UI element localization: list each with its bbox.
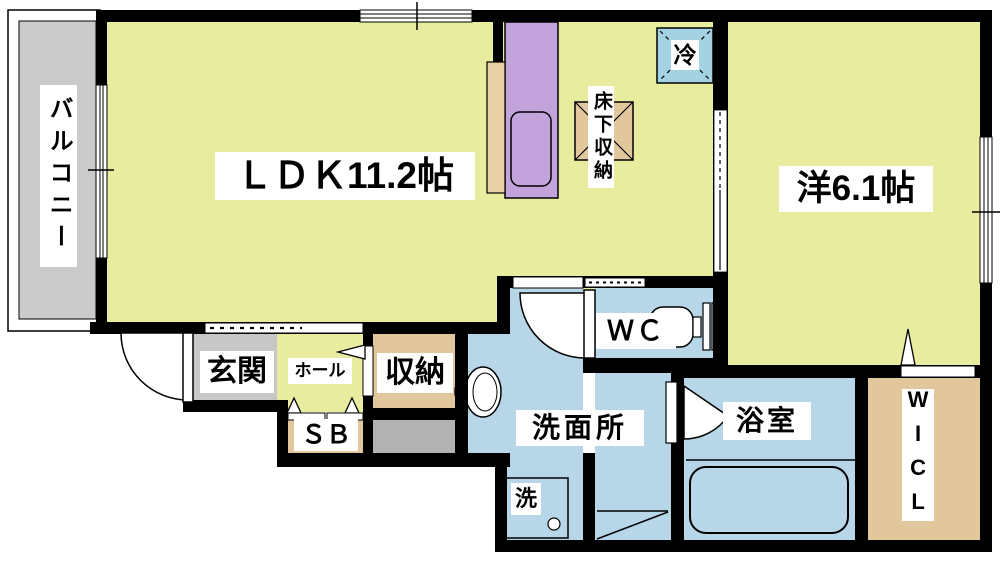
wall xyxy=(363,412,373,460)
porch-floor xyxy=(373,420,455,453)
wall xyxy=(855,378,868,540)
bathroom-label: 浴室 xyxy=(723,402,811,440)
bathtub-icon xyxy=(686,460,855,533)
wicl-label: WICL xyxy=(902,389,934,521)
refrigerator-label: 冷 xyxy=(671,40,699,70)
balcony-label: バルコニー xyxy=(40,85,77,267)
floorplan-drawing xyxy=(0,0,1000,562)
washroom-label: 洗面所 xyxy=(516,410,644,446)
wall xyxy=(373,408,455,420)
wc-label: ＷＣ xyxy=(596,313,676,349)
wall xyxy=(277,400,288,460)
storage-label: 収納 xyxy=(377,353,453,393)
wall xyxy=(495,540,992,552)
wall xyxy=(277,453,510,467)
wc-vent-strip xyxy=(585,278,645,287)
kitchen-counter xyxy=(505,22,558,198)
underfloor-storage-label: 床下収納 xyxy=(588,86,614,188)
wall xyxy=(183,400,288,412)
hall-label: ホール xyxy=(288,358,352,384)
ldk-label: ＬＤＫ11.2帖 xyxy=(215,152,475,200)
wall xyxy=(96,10,992,22)
western-room-label: 洋6.1帖 xyxy=(779,166,933,212)
wall xyxy=(455,322,468,453)
wall xyxy=(583,453,595,540)
washing-machine-label: 洗 xyxy=(511,483,541,515)
entrance-step-line xyxy=(205,323,363,333)
floorplan-canvas: バルコニー ＬＤＫ11.2帖 洋6.1帖 冷 床下収納 ＷＣ 玄関 ホール 収納… xyxy=(0,0,1000,562)
entrance-label: 玄関 xyxy=(200,351,274,393)
wall xyxy=(497,276,510,334)
kitchen-counter-edge xyxy=(487,62,505,193)
shoebox-label: ＳＢ xyxy=(294,419,358,451)
wall xyxy=(493,22,503,62)
entrance-door-icon xyxy=(121,333,193,402)
sliding-door-icon xyxy=(714,110,727,272)
